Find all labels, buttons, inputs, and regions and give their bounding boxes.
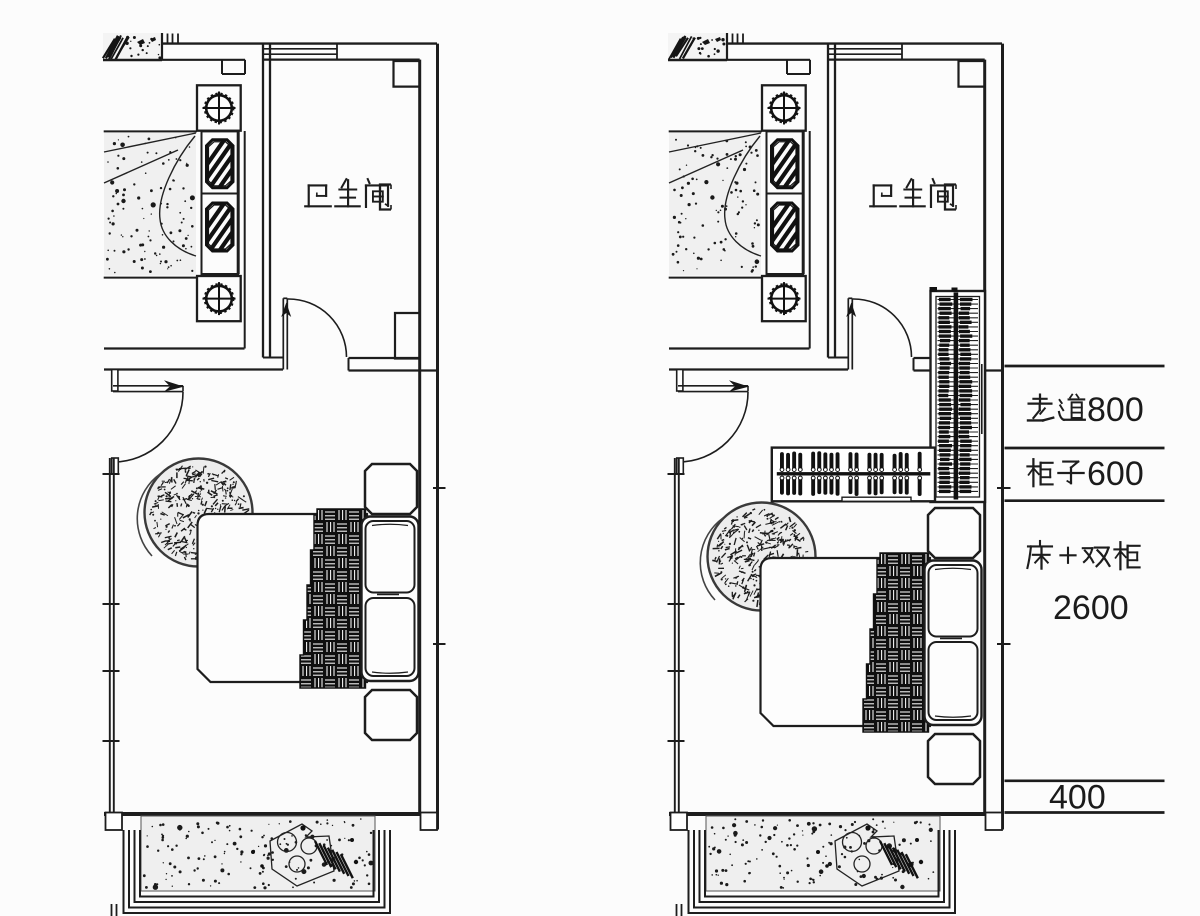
svg-text:800: 800 — [1087, 391, 1144, 429]
svg-text:600: 600 — [1087, 455, 1144, 493]
svg-text:400: 400 — [1049, 779, 1106, 817]
svg-text:2600: 2600 — [1053, 589, 1129, 627]
